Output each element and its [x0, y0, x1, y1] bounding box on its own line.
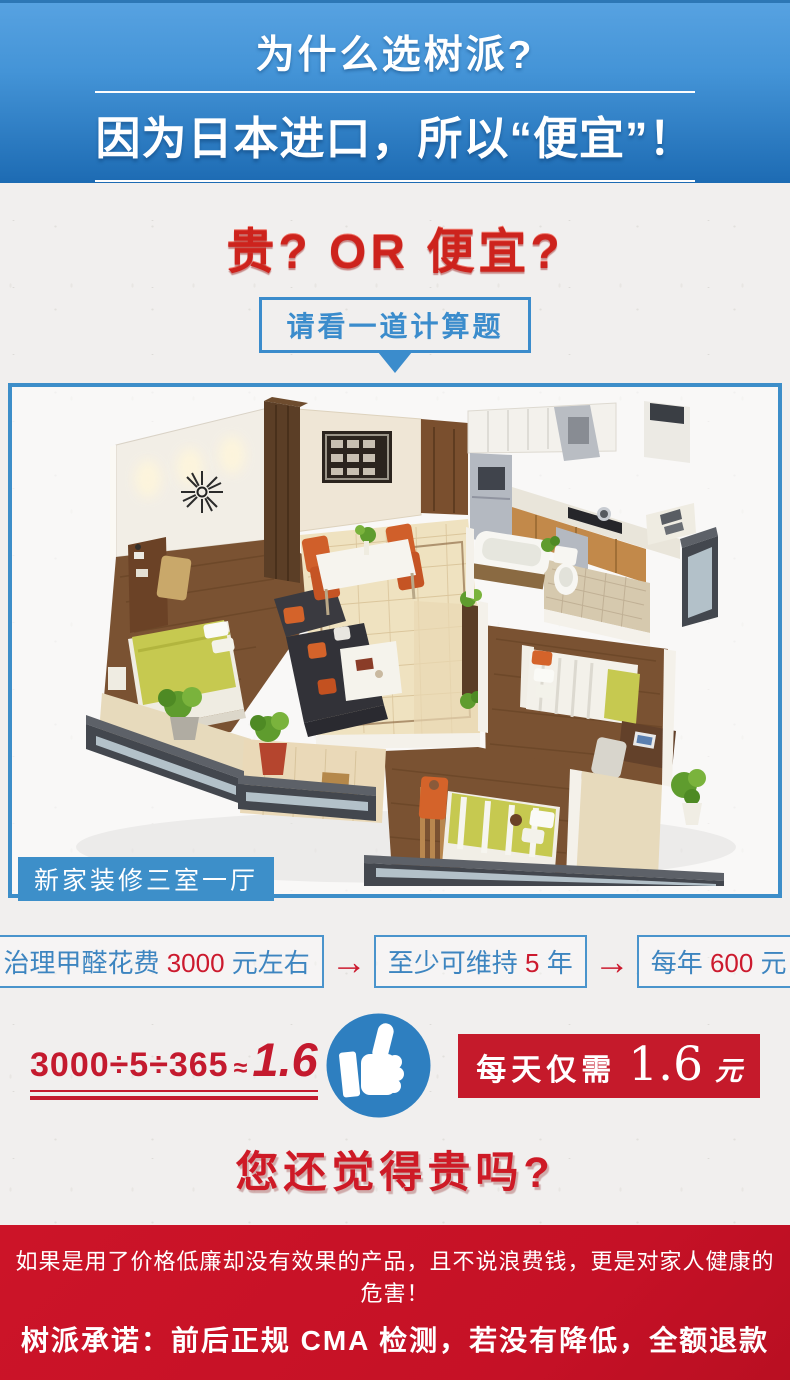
calc-step-yearly: 每年 600 元 — [637, 935, 790, 988]
warning-text: 如果是用了价格低廉却没有效果的产品，且不说浪费钱，更是对家人健康的危害！ — [10, 1244, 780, 1308]
daily-cost-row: 3000÷5÷365≈1.6 每天仅需 1.6 元 — [0, 1012, 790, 1119]
step-value: 5 — [525, 948, 539, 978]
calculation-steps: 治理甲醛花费 3000 元左右 → 至少可维持 5 年 → 每年 600 元 — [0, 935, 790, 988]
calc-step-duration: 至少可维持 5 年 — [374, 935, 587, 988]
step-suffix: 元 — [753, 948, 786, 978]
arrow-right-icon: → — [331, 944, 367, 980]
daily-cost-badge: 每天仅需 1.6 元 — [458, 1034, 760, 1098]
prompt-text: 请看一道计算题 — [286, 311, 503, 342]
floor-plan-panel: 新家装修三室一厅 — [8, 383, 782, 898]
divider — [95, 91, 695, 93]
formula-expression: 3000÷5÷365 — [30, 1046, 229, 1084]
step-value: 600 — [710, 948, 753, 978]
prompt-box: 请看一道计算题 — [259, 297, 530, 353]
promise-text: 树派承诺：前后正规 CMA 检测，若没有降低，全额退款 — [10, 1319, 780, 1359]
cost-suffix: 元 — [715, 1049, 742, 1088]
step-prefix: 至少可维持 — [388, 948, 525, 978]
cost-value: 1.6 — [628, 1037, 703, 1092]
price-question: 贵? OR 便宜? — [0, 212, 790, 282]
header-banner: 为什么选树派? 因为日本进口，所以“便宜”！ — [0, 0, 790, 183]
cost-prefix: 每天仅需 — [476, 1045, 616, 1089]
step-suffix: 年 — [539, 948, 572, 978]
divider — [95, 180, 695, 182]
approx-symbol: ≈ — [234, 1054, 248, 1082]
step-suffix: 元左右 — [225, 948, 310, 978]
cost-formula: 3000÷5÷365≈1.6 — [30, 1032, 318, 1100]
formula-result: 1.6 — [252, 1033, 317, 1086]
down-arrow-icon — [378, 352, 412, 373]
step-prefix: 每年 — [651, 948, 710, 978]
step-prefix: 治理甲醛花费 — [3, 948, 166, 978]
conclusion-question: 您还觉得贵吗? — [0, 1138, 790, 1200]
floor-plan-label: 新家装修三室一厅 — [18, 857, 274, 901]
header-subtitle: 因为日本进口，所以“便宜”！ — [0, 102, 790, 167]
page-title: 为什么选树派? — [0, 3, 790, 80]
prompt-section: 请看一道计算题 — [0, 297, 790, 373]
promise-banner: 如果是用了价格低廉却没有效果的产品，且不说浪费钱，更是对家人健康的危害！ 树派承… — [0, 1225, 790, 1380]
calc-step-cost: 治理甲醛花费 3000 元左右 — [0, 935, 324, 988]
thumbs-up-icon — [325, 1012, 432, 1119]
step-value: 3000 — [167, 948, 225, 978]
arrow-right-icon: → — [594, 944, 630, 980]
floor-plan-image — [16, 387, 774, 886]
